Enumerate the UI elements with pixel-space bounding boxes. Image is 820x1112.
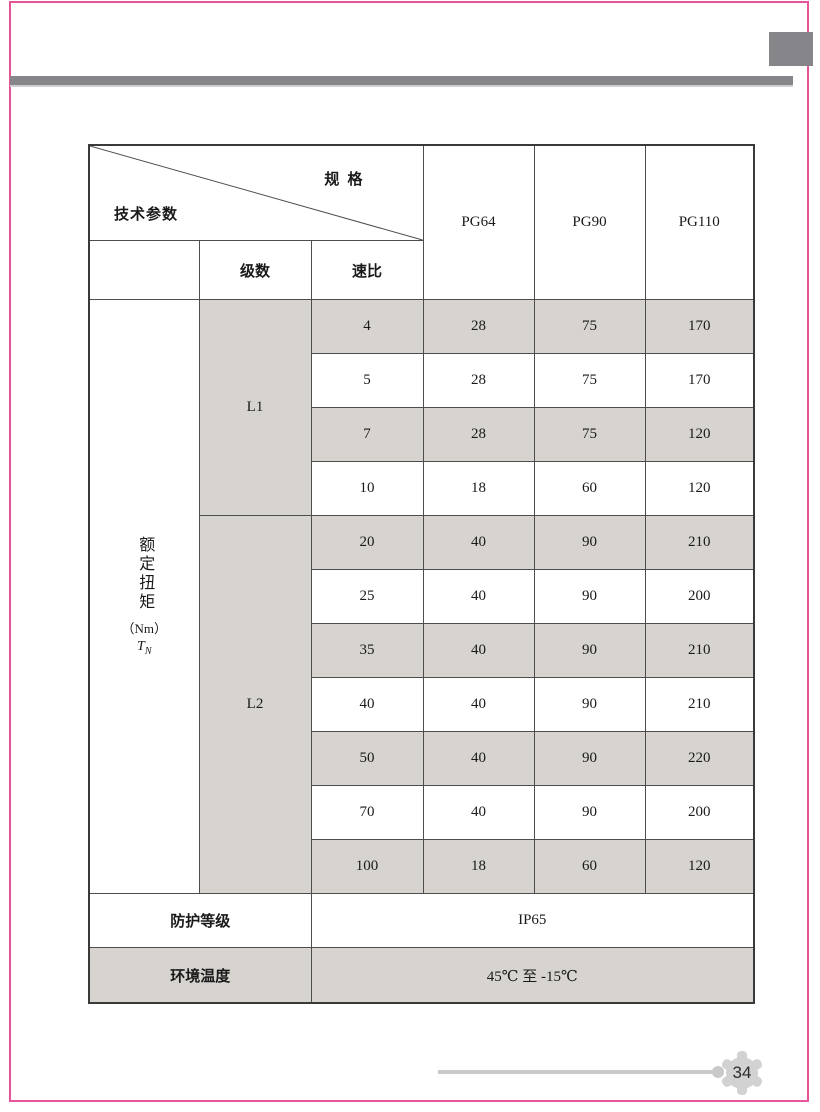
col-header-pg64: PG64 xyxy=(423,145,534,300)
pg90-cell: 60 xyxy=(534,462,645,516)
pg110-cell: 200 xyxy=(645,786,754,840)
corner-diagonal-cell: 规 格 技术参数 xyxy=(89,145,423,241)
footer-rule-line xyxy=(438,1070,718,1074)
ratio-cell: 100 xyxy=(311,840,423,894)
ratio-cell: 10 xyxy=(311,462,423,516)
temperature-label: 环境温度 xyxy=(89,948,311,1004)
pg90-cell: 60 xyxy=(534,840,645,894)
ratio-cell: 5 xyxy=(311,354,423,408)
table-row: 额定扭矩 （Nm） TN L1 4 28 75 170 xyxy=(89,300,754,354)
header-rule-bar xyxy=(10,76,793,85)
pg90-cell: 90 xyxy=(534,732,645,786)
temperature-value: 45℃ 至 -15℃ xyxy=(311,948,754,1004)
pg64-cell: 40 xyxy=(423,570,534,624)
pg110-cell: 210 xyxy=(645,516,754,570)
corner-label-spec: 规 格 xyxy=(324,168,364,189)
torque-symbol-letter: T xyxy=(137,639,145,654)
ratio-cell: 20 xyxy=(311,516,423,570)
pg110-cell: 210 xyxy=(645,678,754,732)
pg110-cell: 120 xyxy=(645,462,754,516)
sub-header-ratio: 速比 xyxy=(311,241,423,300)
protection-value: IP65 xyxy=(311,894,754,948)
pg110-cell: 120 xyxy=(645,408,754,462)
pg64-cell: 40 xyxy=(423,732,534,786)
torque-label-cell: 额定扭矩 （Nm） TN xyxy=(89,300,199,894)
pg64-cell: 40 xyxy=(423,678,534,732)
sub-header-stage: 级数 xyxy=(199,241,311,300)
pg64-cell: 40 xyxy=(423,516,534,570)
col-header-pg110: PG110 xyxy=(645,145,754,300)
protection-label: 防护等级 xyxy=(89,894,311,948)
pg90-cell: 90 xyxy=(534,570,645,624)
pg64-cell: 28 xyxy=(423,300,534,354)
torque-symbol-sub: N xyxy=(145,646,152,657)
col-header-pg90: PG90 xyxy=(534,145,645,300)
pg90-cell: 90 xyxy=(534,624,645,678)
pg90-cell: 90 xyxy=(534,516,645,570)
torque-unit: （Nm） xyxy=(121,618,167,637)
ratio-cell: 25 xyxy=(311,570,423,624)
page-number-badge: 34 xyxy=(719,1050,765,1096)
torque-label-vertical: 额定扭矩 xyxy=(136,536,152,612)
pg64-cell: 28 xyxy=(423,354,534,408)
pg64-cell: 18 xyxy=(423,462,534,516)
pg64-cell: 40 xyxy=(423,786,534,840)
pg90-cell: 75 xyxy=(534,408,645,462)
protection-row: 防护等级 IP65 xyxy=(89,894,754,948)
pg90-cell: 75 xyxy=(534,354,645,408)
pg64-cell: 28 xyxy=(423,408,534,462)
pg110-cell: 210 xyxy=(645,624,754,678)
ratio-cell: 35 xyxy=(311,624,423,678)
page-number: 34 xyxy=(719,1050,765,1096)
empty-header-cell xyxy=(89,241,199,300)
ratio-cell: 50 xyxy=(311,732,423,786)
corner-label-parameters: 技术参数 xyxy=(114,203,178,224)
pg90-cell: 90 xyxy=(534,678,645,732)
header-corner-block xyxy=(769,32,813,66)
ratio-cell: 40 xyxy=(311,678,423,732)
diagonal-divider-line xyxy=(90,146,423,240)
temperature-row: 环境温度 45℃ 至 -15℃ xyxy=(89,948,754,1004)
header-row-1: 规 格 技术参数 PG64 PG90 PG110 xyxy=(89,145,754,241)
pg64-cell: 40 xyxy=(423,624,534,678)
torque-symbol: TN xyxy=(137,639,151,657)
ratio-cell: 7 xyxy=(311,408,423,462)
pg110-cell: 170 xyxy=(645,354,754,408)
pg110-cell: 200 xyxy=(645,570,754,624)
pg90-cell: 90 xyxy=(534,786,645,840)
pg110-cell: 220 xyxy=(645,732,754,786)
ratio-cell: 4 xyxy=(311,300,423,354)
pg64-cell: 18 xyxy=(423,840,534,894)
stage-group-l2: L2 xyxy=(199,516,311,894)
technical-parameters-table: 规 格 技术参数 PG64 PG90 PG110 级数 速比 额定扭矩 （Nm）… xyxy=(88,144,755,1004)
pg90-cell: 75 xyxy=(534,300,645,354)
pg110-cell: 120 xyxy=(645,840,754,894)
stage-group-l1: L1 xyxy=(199,300,311,516)
pg110-cell: 170 xyxy=(645,300,754,354)
ratio-cell: 70 xyxy=(311,786,423,840)
